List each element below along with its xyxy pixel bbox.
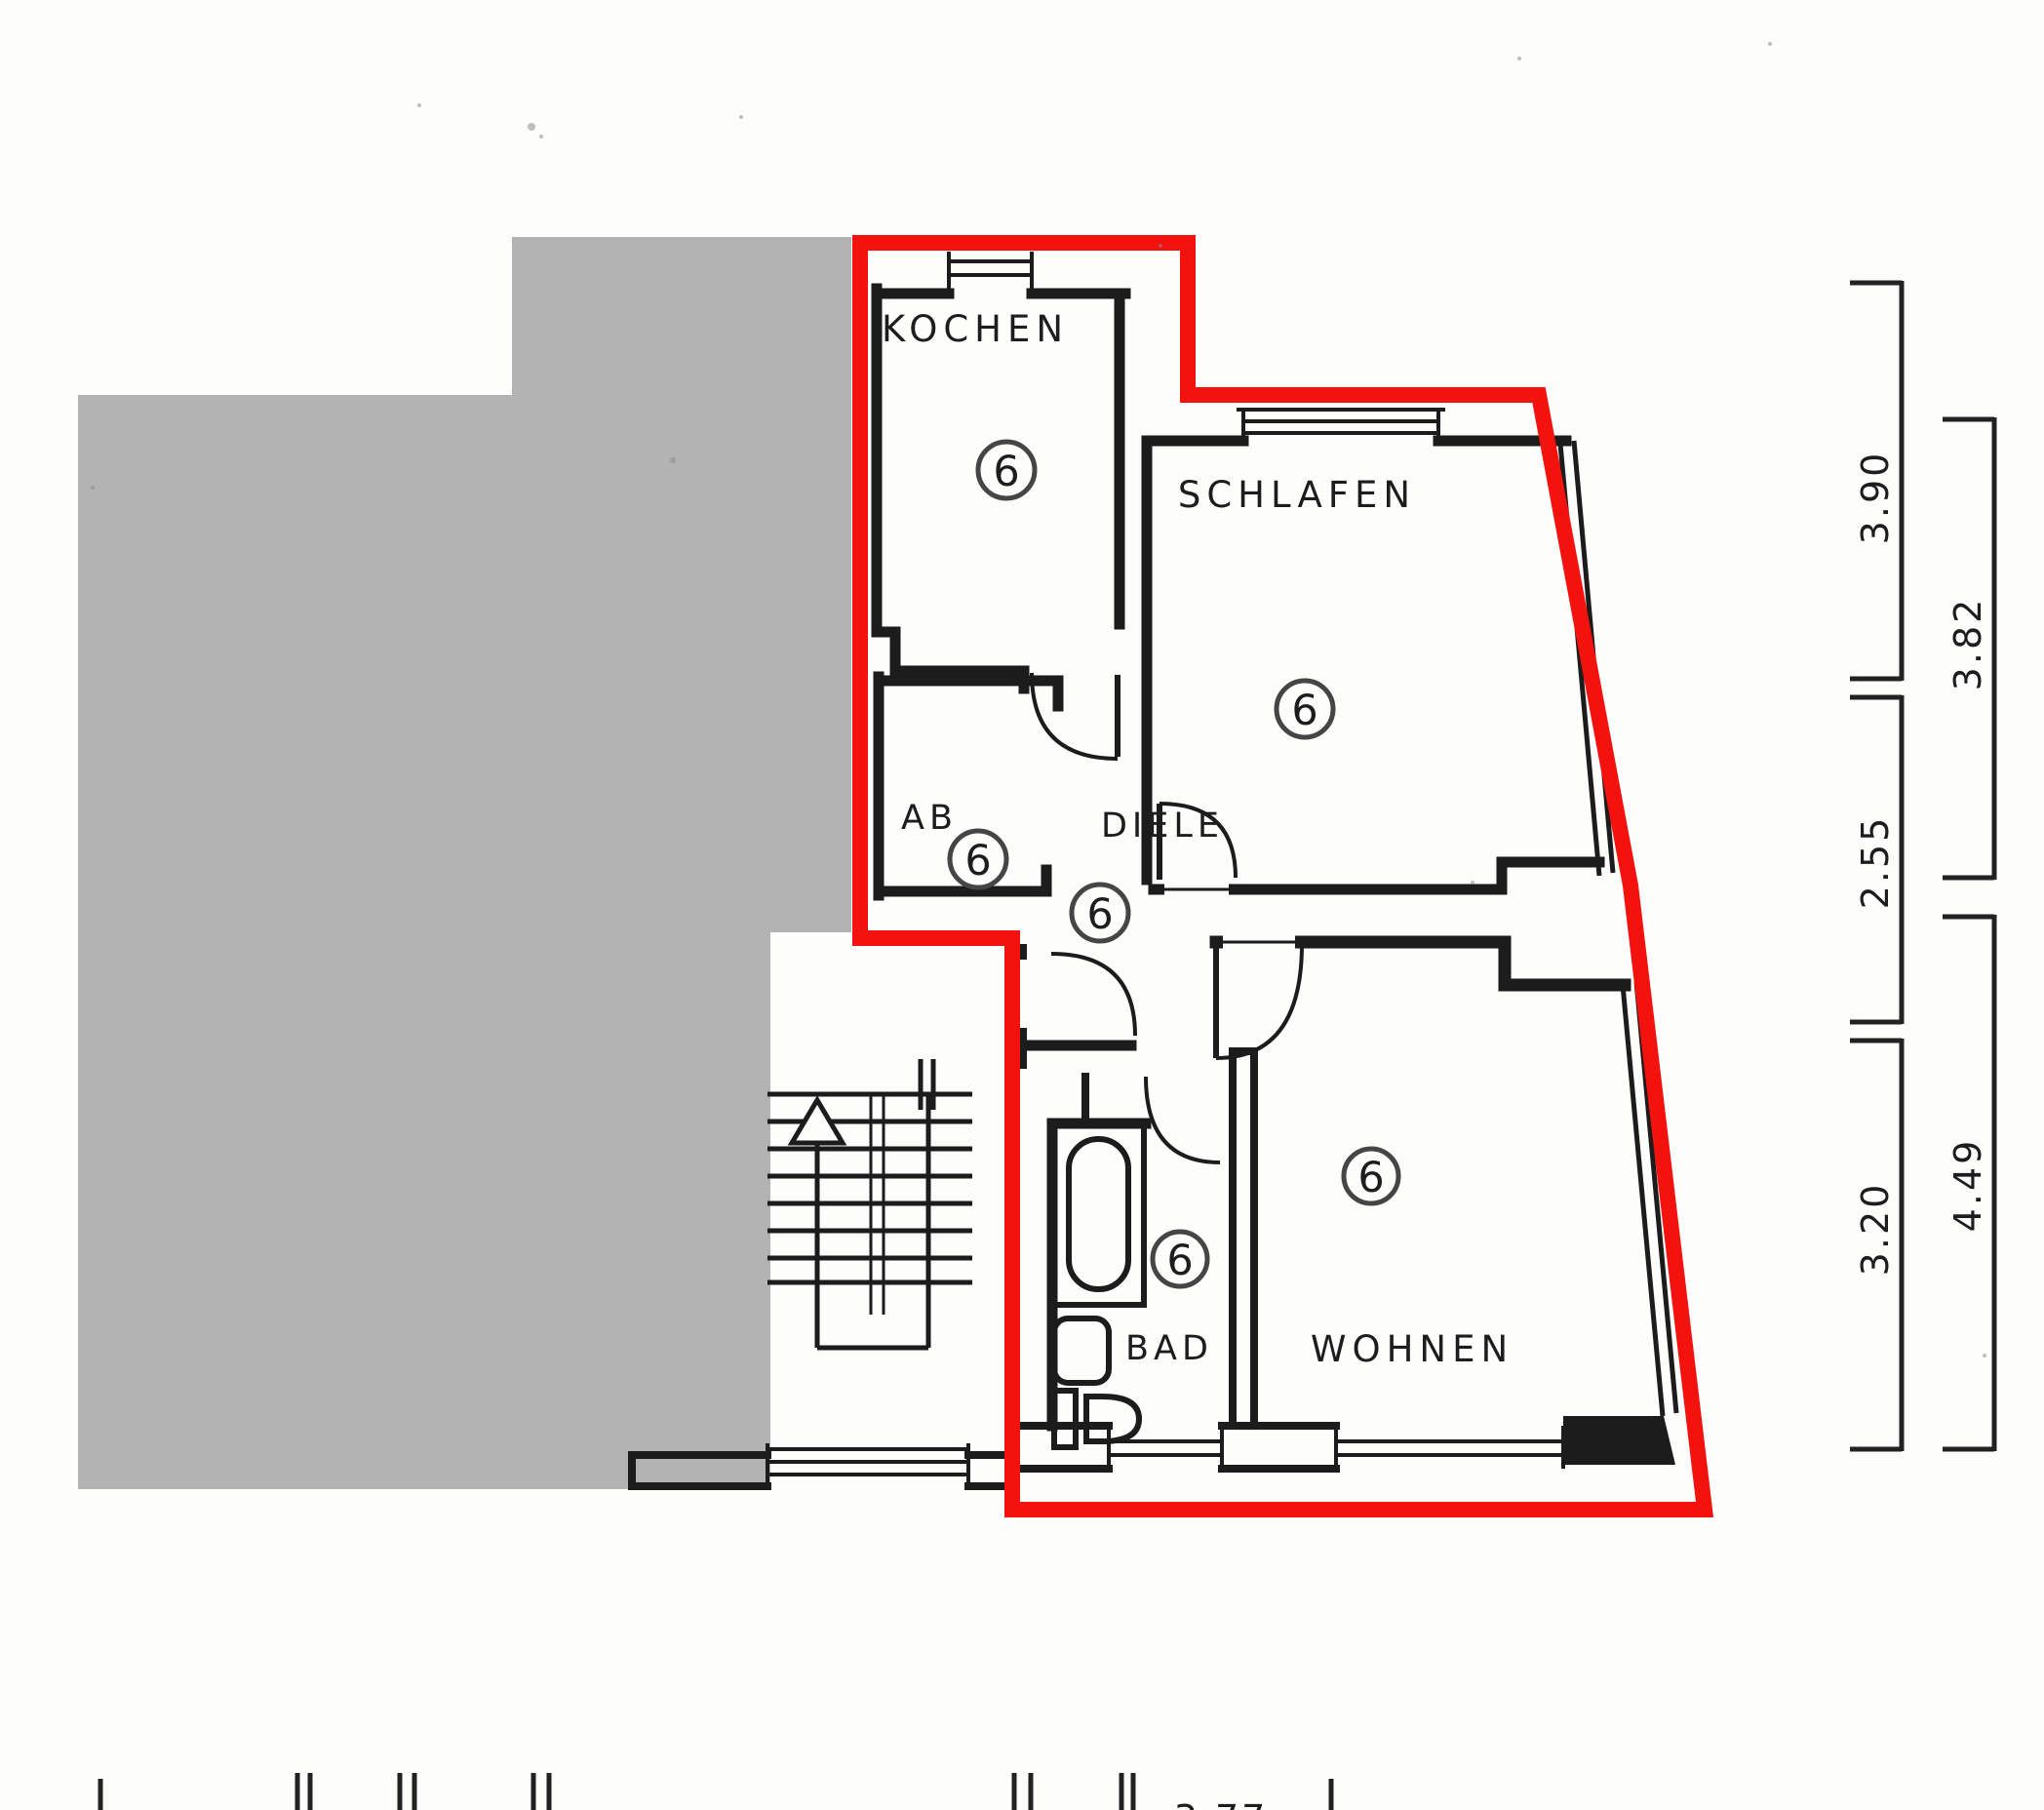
dimension-chain-outer: 3.82 4.49	[1943, 417, 1994, 1451]
wohnen-window	[1336, 1426, 1563, 1469]
wohnen-door	[1216, 944, 1302, 1058]
svg-text:6: 6	[993, 448, 1019, 496]
neighbor-unit-mass	[78, 237, 851, 1489]
dimension-390: 3.90	[1854, 451, 1897, 545]
bad-door	[1146, 1077, 1220, 1162]
stair-handrail	[871, 1094, 928, 1348]
hall-and-entrance	[1023, 948, 1135, 1065]
unit-number-diele: 6	[1072, 885, 1128, 941]
unit-number-kochen: 6	[978, 442, 1035, 498]
toilet-icon	[1054, 1391, 1139, 1447]
unit-number-bad: 6	[1153, 1232, 1207, 1286]
room-label-kochen: KOCHEN	[882, 308, 1069, 350]
dimension-382: 3.82	[1946, 597, 1989, 691]
stair-landing	[817, 1282, 928, 1348]
dimension-449: 4.49	[1946, 1138, 1989, 1233]
stair-direction-arrow	[792, 1100, 843, 1299]
svg-text:6: 6	[1291, 687, 1317, 735]
schlafen-window	[1237, 408, 1445, 441]
dimension-255: 2.55	[1854, 815, 1897, 910]
room-label-wohnen: WOHNEN	[1311, 1328, 1513, 1370]
entrance-door	[1026, 954, 1135, 1045]
kochen-window	[949, 252, 1032, 294]
unit-number-ab: 6	[950, 831, 1006, 887]
room-wohnen-walls	[1216, 933, 1625, 1058]
sink-icon	[1054, 1318, 1109, 1383]
room-label-ab: AB	[901, 799, 958, 838]
bad-window	[1109, 1426, 1222, 1469]
floor-plan-page: KOCHEN SCHLAFEN AB DIELE BAD WOHNEN 6 6 …	[0, 0, 2044, 1810]
dimension-chain-inner: 3.90 2.55 3.20	[1850, 281, 1902, 1451]
svg-text:6: 6	[964, 837, 991, 885]
dimension-320: 3.20	[1854, 1182, 1897, 1277]
unit-number-wohnen: 6	[1344, 1149, 1398, 1203]
room-label-bad: BAD	[1125, 1329, 1213, 1368]
room-label-schlafen: SCHLAFEN	[1178, 474, 1416, 516]
floor-plan-drawing: KOCHEN SCHLAFEN AB DIELE BAD WOHNEN 6 6 …	[0, 0, 2044, 1810]
south-wall-and-windows	[1024, 1416, 1675, 1469]
svg-text:6: 6	[1166, 1237, 1193, 1285]
bathtub-icon	[1054, 1123, 1144, 1305]
svg-text:6: 6	[1086, 890, 1113, 939]
unit-number-schlafen: 6	[1277, 681, 1333, 737]
dimension-bottom-partial: 3.77	[1174, 1797, 1269, 1810]
room-label-diele: DIELE	[1101, 807, 1224, 846]
svg-text:6: 6	[1357, 1154, 1384, 1202]
bottom-dimension-ticks: 3.77	[100, 1773, 1331, 1810]
